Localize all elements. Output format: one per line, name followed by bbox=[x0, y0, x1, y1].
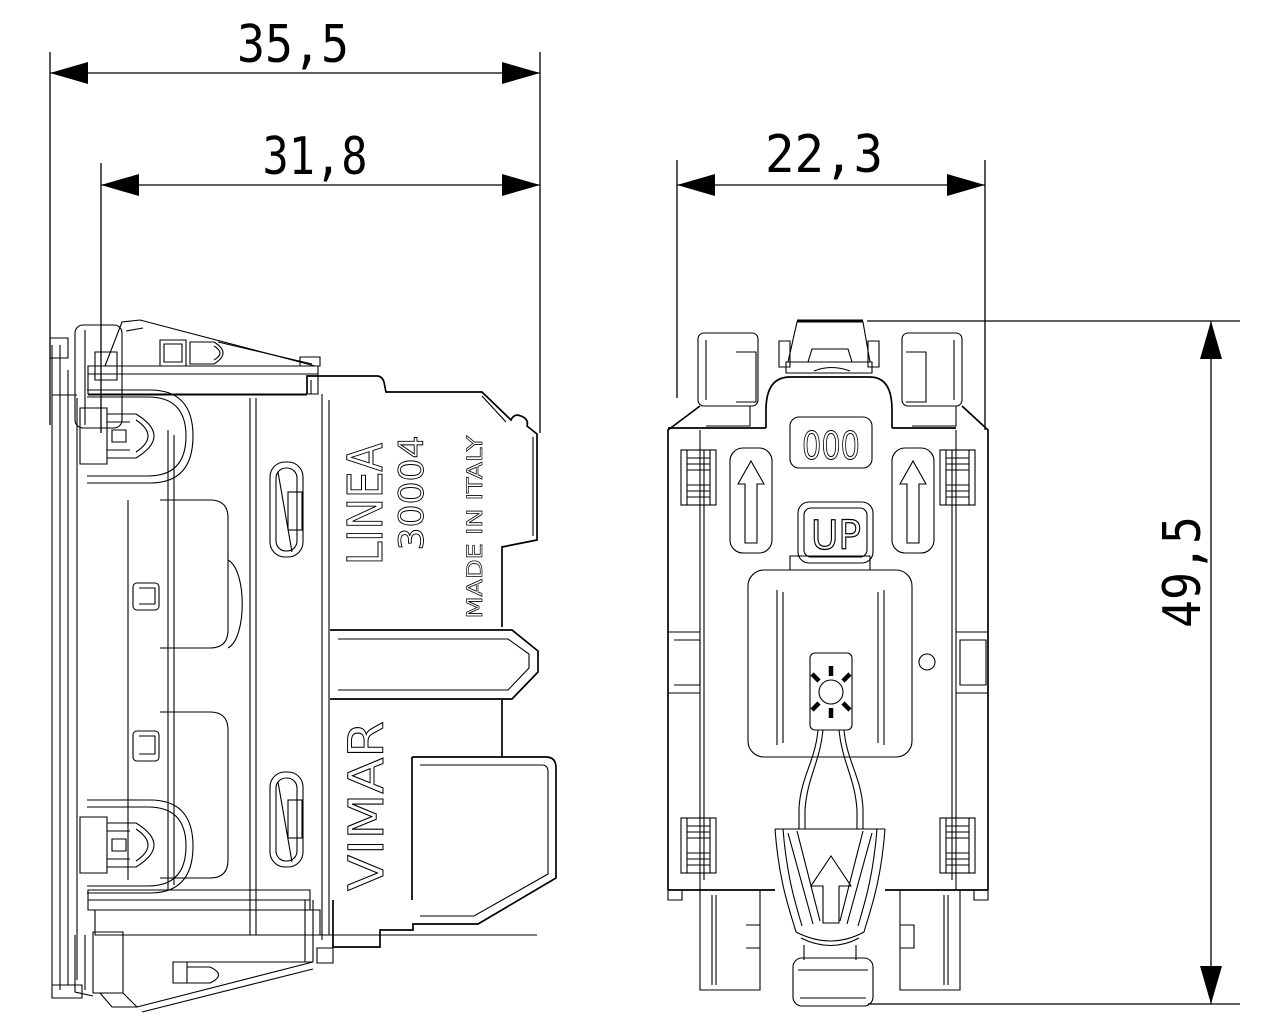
arrowhead-right-icon bbox=[947, 174, 985, 196]
dimension-value: 22,3 bbox=[765, 125, 883, 185]
arrowhead-left-icon bbox=[101, 174, 139, 196]
top-clip-right bbox=[902, 333, 962, 426]
corner-latch-top-right bbox=[940, 450, 975, 505]
central-track bbox=[748, 556, 912, 757]
side-view-maker-text: VIMAR bbox=[339, 721, 395, 891]
inner-walls bbox=[700, 430, 956, 890]
dim-height: 49,5 bbox=[867, 321, 1240, 1004]
arrowhead-bottom-icon bbox=[1200, 966, 1222, 1004]
fixing-claw-inner bbox=[338, 639, 529, 690]
arrowhead-left-icon bbox=[677, 174, 715, 196]
technical-drawing: 35,5 31,8 22,3 49,5 bbox=[0, 0, 1280, 1024]
bottom-tab-and-pin bbox=[137, 962, 313, 1012]
up-arrow-left-panel bbox=[730, 448, 772, 553]
contact-housing-bottom bbox=[87, 800, 193, 893]
fixing-claw bbox=[330, 630, 538, 699]
side-view: LINEA 30004 MADE IN ITALY VIMAR bbox=[50, 320, 556, 1012]
lamp-icon bbox=[812, 666, 850, 718]
pilot-hole bbox=[919, 654, 935, 670]
funnel-up-arrow-icon bbox=[811, 856, 851, 923]
up-label-text: UP bbox=[811, 513, 861, 559]
top-clip-left bbox=[698, 333, 758, 426]
drawing-canvas: 35,5 31,8 22,3 49,5 bbox=[0, 0, 1280, 1024]
contact-housing-top bbox=[87, 390, 193, 483]
embossed-code-badge: 000 bbox=[790, 417, 872, 468]
dimension-value: 31,8 bbox=[263, 127, 368, 187]
up-arrow-icon bbox=[900, 461, 926, 543]
arrowhead-top-icon bbox=[1200, 321, 1222, 359]
bottom-funnel bbox=[775, 829, 885, 946]
dimension-value: 35,5 bbox=[237, 15, 349, 75]
side-view-brand-text: LINEA bbox=[338, 443, 394, 565]
rear-embossed-digits: 000 bbox=[802, 424, 860, 468]
front-plate-edge bbox=[50, 338, 82, 998]
lamp-panel bbox=[810, 653, 852, 730]
pivot-slot-bottom bbox=[270, 772, 303, 867]
arrowhead-right-icon bbox=[502, 62, 540, 84]
dim-inner-width: 31,8 bbox=[101, 127, 540, 433]
bottom-tab bbox=[793, 945, 873, 1006]
side-view-origin-text: MADE IN ITALY bbox=[463, 435, 487, 618]
up-badge: UP bbox=[798, 502, 873, 563]
corner-latch-bottom-left bbox=[681, 818, 716, 873]
mid-windows bbox=[133, 583, 159, 761]
lower-column-right bbox=[900, 890, 988, 990]
top-terminal bbox=[779, 321, 879, 373]
plunger-top bbox=[80, 408, 154, 464]
plunger-bottom bbox=[80, 817, 154, 873]
up-arrow-icon bbox=[738, 461, 764, 543]
mid-brackets bbox=[160, 500, 242, 878]
dim-overall-width: 35,5 bbox=[50, 15, 540, 433]
top-tab-and-pin bbox=[160, 340, 312, 366]
up-arrow-right-panel bbox=[892, 448, 934, 553]
corner-latch-bottom-right bbox=[940, 818, 975, 873]
arrowhead-left-icon bbox=[50, 62, 88, 84]
side-notches bbox=[668, 632, 988, 693]
dimension-value: 49,5 bbox=[1153, 516, 1213, 628]
side-view-model-text: 30004 bbox=[392, 436, 432, 551]
pivot-slot-top bbox=[270, 462, 303, 557]
rear-view: 000 UP bbox=[668, 321, 988, 1006]
contact-wires bbox=[799, 730, 863, 829]
top-bar bbox=[88, 357, 320, 394]
bottom-clip bbox=[75, 932, 137, 1007]
dim-depth: 22,3 bbox=[677, 125, 985, 430]
corner-latch-top-left bbox=[681, 450, 716, 505]
arrowhead-right-icon bbox=[502, 174, 540, 196]
lower-column-left bbox=[668, 890, 760, 990]
top-latch-ramp bbox=[105, 320, 315, 366]
